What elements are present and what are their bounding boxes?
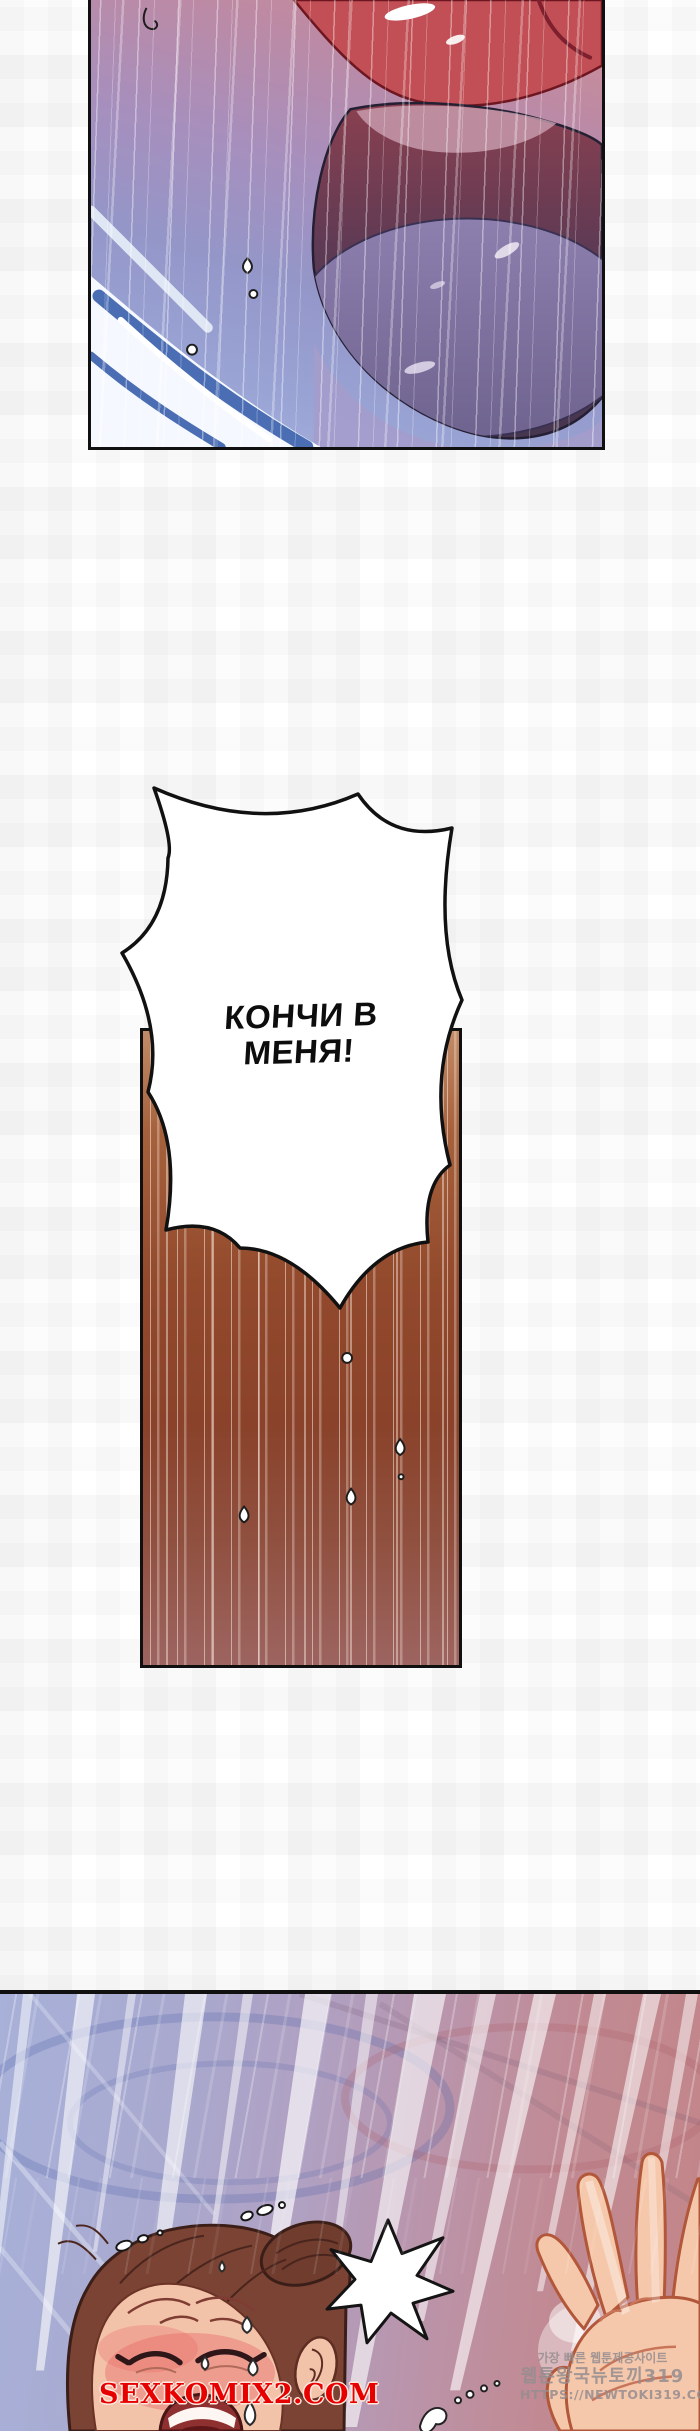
newtoki-watermark-line3: HTTPS://NEWTOKI319.COM xyxy=(520,2387,685,2403)
sexkomix-watermark: SEXKOMIX2.COM xyxy=(99,2379,379,2410)
newtoki-watermark: 가장 빠른 웹툰제공사이트 웹툰왕국뉴토끼319 HTTPS://NEWTOKI… xyxy=(520,2351,685,2403)
mouth-artwork xyxy=(91,0,602,447)
newtoki-watermark-line2: 웹툰왕국뉴토끼319 xyxy=(520,2366,685,2387)
bubble-line-1: КОНЧИ В xyxy=(190,995,413,1037)
upper-lip xyxy=(294,0,602,106)
water-splash xyxy=(91,211,321,447)
speech-bubble-text: КОНЧИ В МЕНЯ! xyxy=(188,995,413,1073)
newtoki-watermark-line1: 가장 빠른 웹툰제공사이트 xyxy=(520,2351,685,2366)
droplet-icons xyxy=(144,8,258,355)
comic-page: КОНЧИ В МЕНЯ! xyxy=(0,0,700,2431)
panel-open-mouth xyxy=(88,0,605,450)
bubble-line-2: МЕНЯ! xyxy=(188,1031,411,1073)
